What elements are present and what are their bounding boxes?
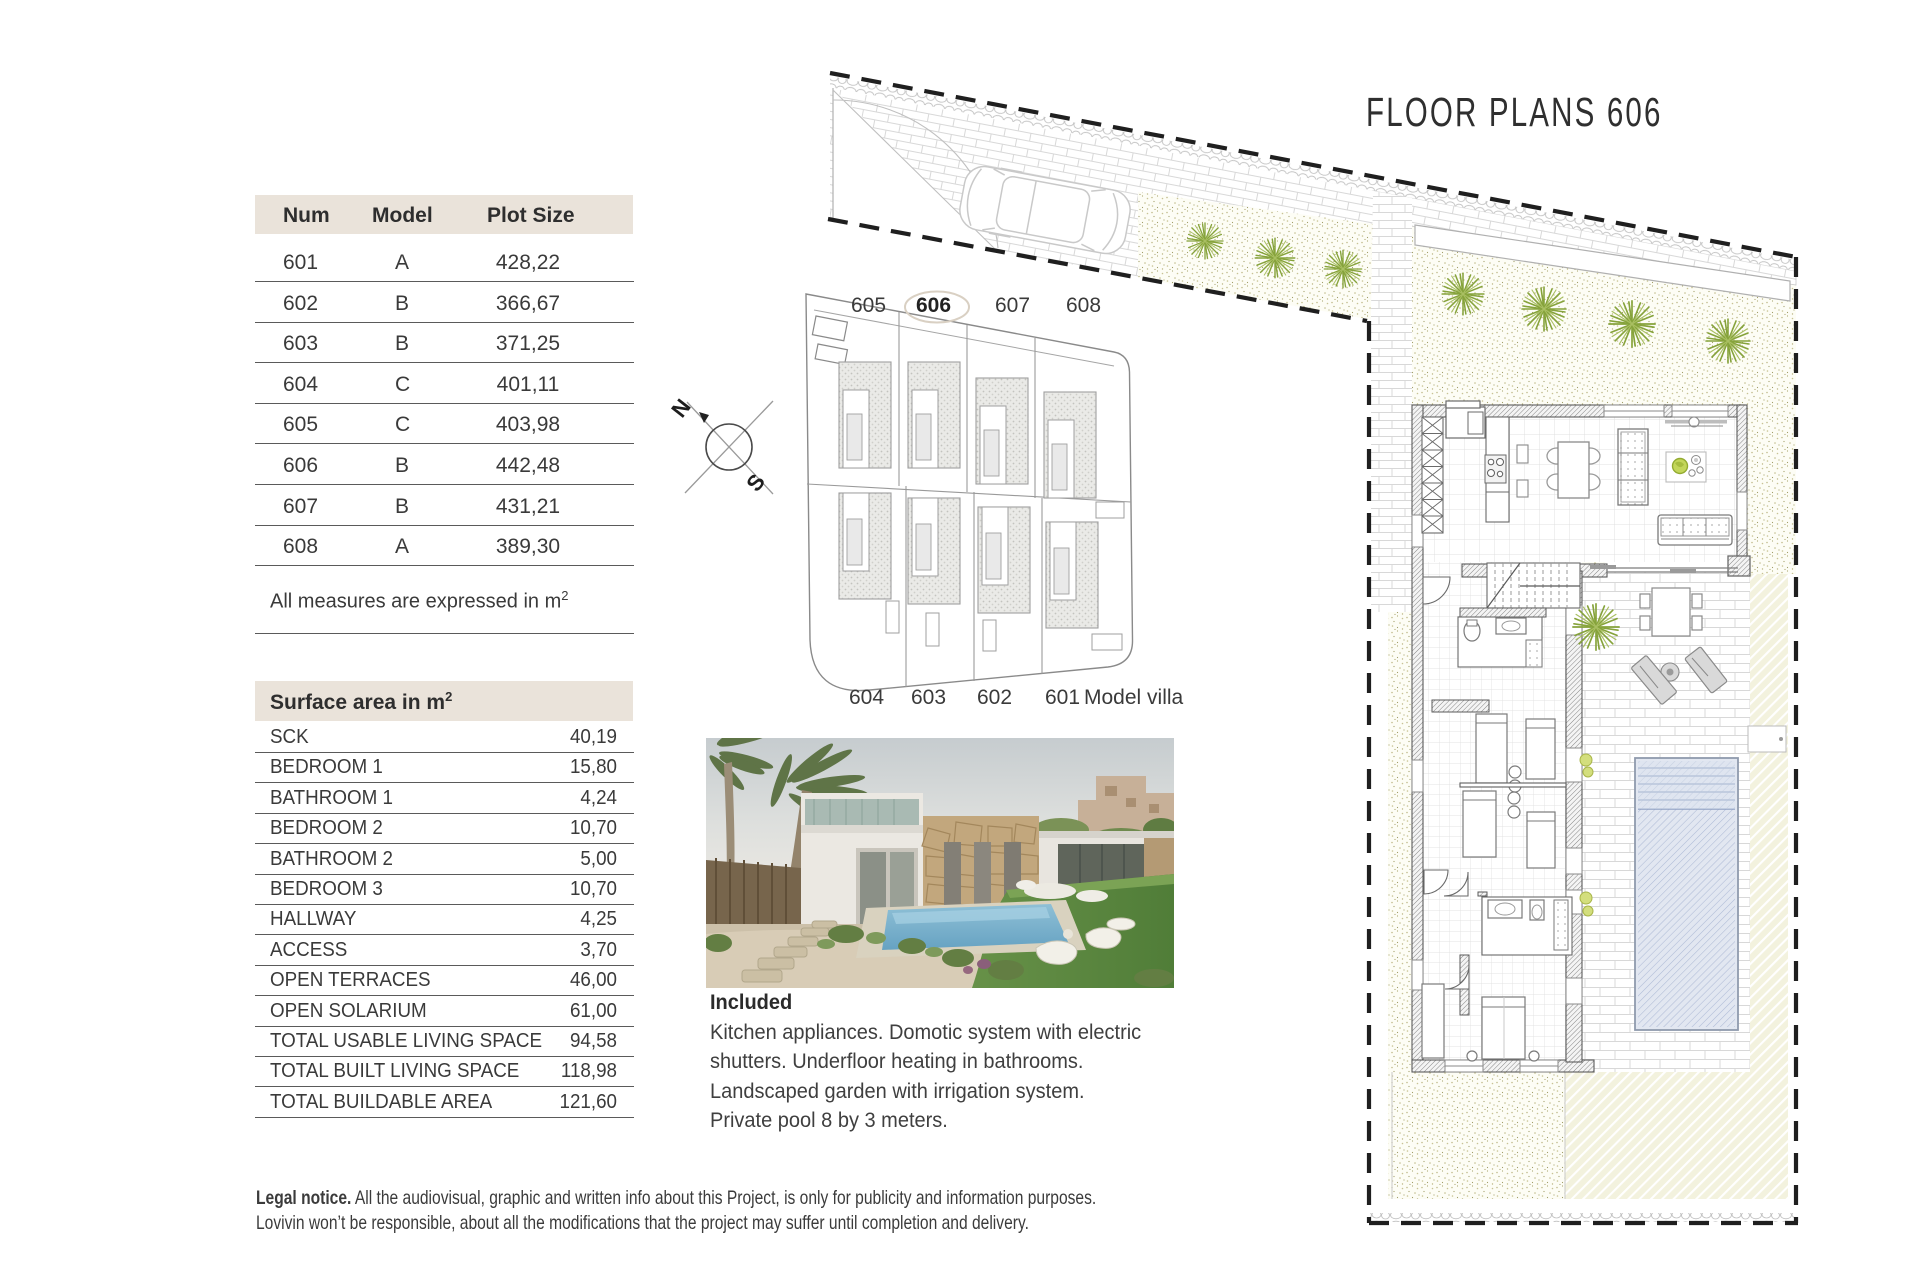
svg-text:S: S (741, 469, 770, 496)
svg-text:N: N (666, 394, 695, 422)
